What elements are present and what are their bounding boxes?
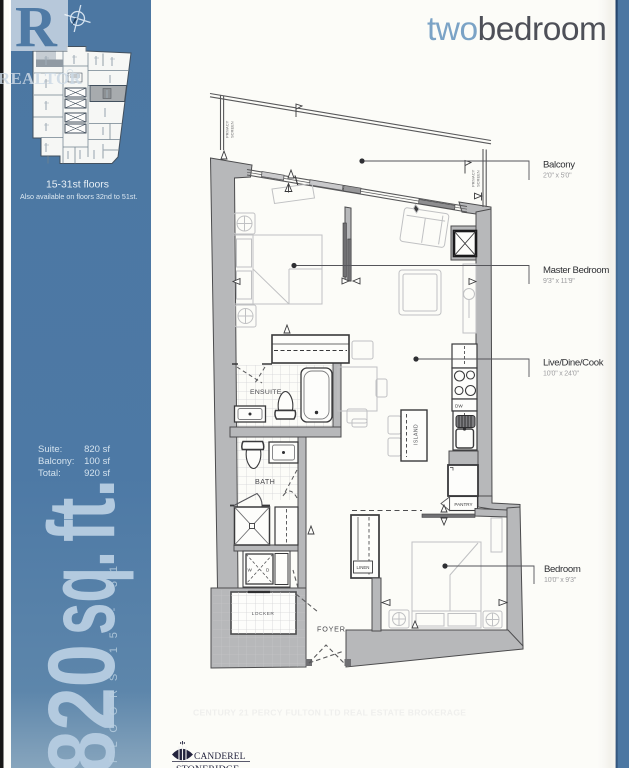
svg-text:PANTRY: PANTRY [454,502,472,507]
svg-text:Balcony: Balcony [543,160,575,171]
svg-text:CANDEREL: CANDEREL [194,752,246,762]
svg-text:100 sf: 100 sf [84,456,110,467]
svg-text:SCREEN: SCREEN [230,121,235,138]
svg-text:LINEN: LINEN [357,565,370,570]
svg-text:DW: DW [455,404,463,409]
svg-text:ENSUITE: ENSUITE [250,389,282,396]
svg-text:10'0" x 9'3": 10'0" x 9'3" [544,577,577,584]
svg-text:twobedroom: twobedroom [427,11,606,48]
svg-text:Balcony:: Balcony: [38,456,74,467]
svg-text:REALTOR: REALTOR [0,69,82,88]
svg-text:SCREEN: SCREEN [476,170,481,187]
svg-text:STONERIDGE: STONERIDGE [176,764,239,768]
svg-text:W: W [248,568,253,573]
svg-text:Also available on floors 32nd: Also available on floors 32nd to 51st. [20,192,137,201]
svg-text:820 sf: 820 sf [84,444,110,455]
svg-text:BATH: BATH [255,477,275,486]
svg-text:9'3" x 11'9": 9'3" x 11'9" [543,278,575,285]
svg-text:ISLAND: ISLAND [414,424,420,445]
svg-text:2'0" x 5'0": 2'0" x 5'0" [543,173,572,180]
svg-text:Total:: Total: [38,468,61,479]
svg-text:Suite:: Suite: [38,444,62,455]
svg-text:Master Bedroom: Master Bedroom [543,265,609,276]
svg-text:15-31st floors: 15-31st floors [46,180,109,191]
svg-text:CENTURY 21 PERCY FULTON LTD RE: CENTURY 21 PERCY FULTON LTD REAL ESTATE … [193,708,466,718]
svg-text:Live/Dine/Cook: Live/Dine/Cook [543,358,604,369]
svg-text:LOCKER: LOCKER [252,611,275,617]
svg-text:R: R [15,0,58,59]
svg-text:FOYER: FOYER [317,625,346,634]
svg-text:10'0" x 24'0": 10'0" x 24'0" [543,371,580,378]
svg-text:920 sf: 920 sf [84,468,110,479]
svg-text:FLOORS 15 - 51: FLOORS 15 - 51 [108,557,120,763]
svg-text:Bedroom: Bedroom [544,564,581,575]
svg-text:ft.: ft. [29,479,135,542]
